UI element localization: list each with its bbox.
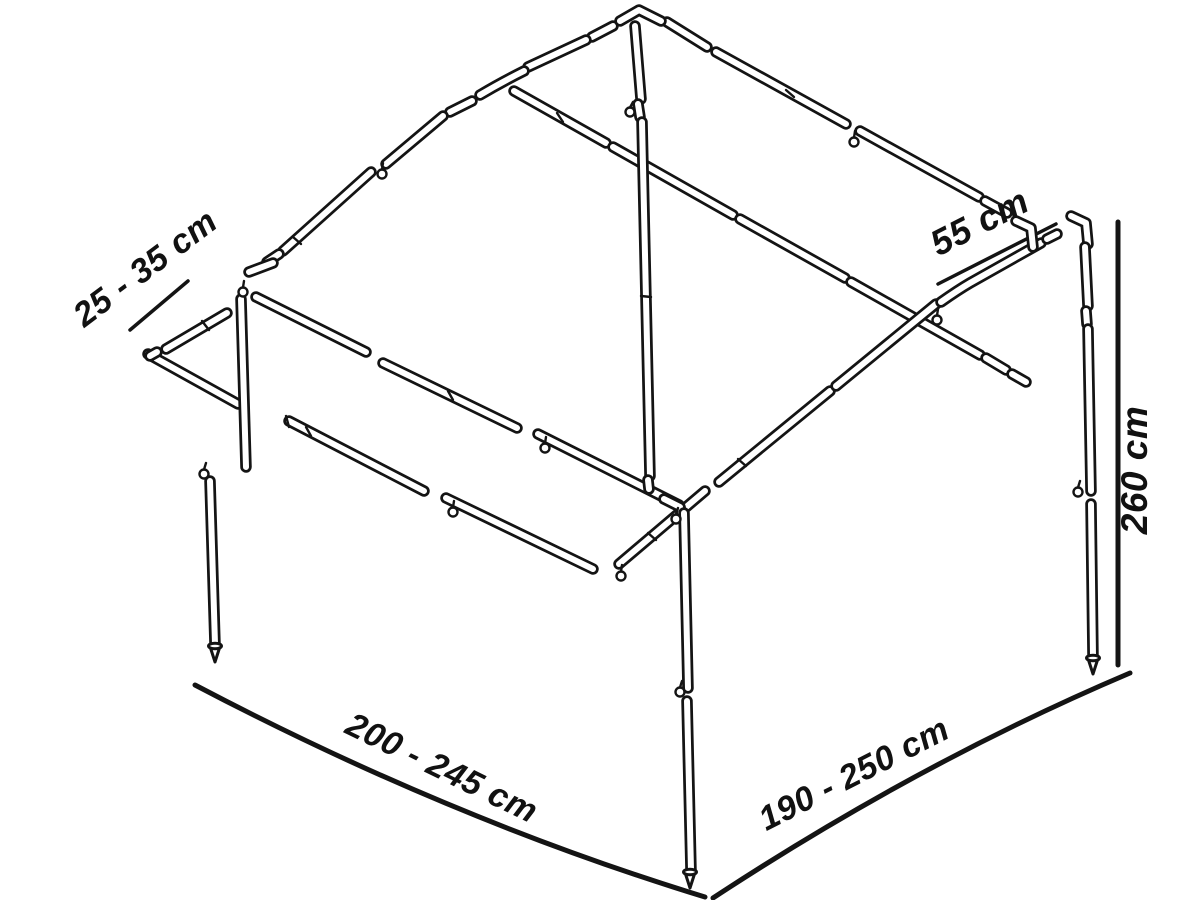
center-mast bbox=[635, 26, 650, 489]
foot-spike-icon bbox=[209, 643, 222, 662]
roof-slope-left bbox=[267, 26, 613, 262]
diagram-page: 25 - 35 cm 55 cm 260 cm 200 - 245 cm 190… bbox=[0, 0, 1200, 900]
right-leg bbox=[1085, 247, 1093, 656]
clip-icon bbox=[200, 463, 209, 479]
connectors bbox=[249, 10, 1088, 519]
extension-piece bbox=[150, 313, 227, 356]
left-leg bbox=[210, 299, 246, 644]
dimension-label-height: 260 cm bbox=[1114, 406, 1155, 536]
left-eave-rail-sections bbox=[256, 297, 679, 505]
dimension-label-extension: 25 - 35 cm bbox=[65, 202, 224, 335]
dimension-line-side-depth bbox=[713, 673, 1130, 898]
foot-spike-icon bbox=[1087, 655, 1100, 674]
clip-icon bbox=[239, 281, 248, 297]
clip-icon bbox=[626, 102, 635, 117]
foot-spike-icon bbox=[684, 869, 697, 888]
roof-slope-right bbox=[667, 22, 1007, 213]
leg-feet bbox=[209, 643, 1100, 888]
tent-frame-diagram: 25 - 35 cm 55 cm 260 cm 200 - 245 cm 190… bbox=[0, 0, 1200, 900]
clip-icon bbox=[1074, 481, 1083, 497]
